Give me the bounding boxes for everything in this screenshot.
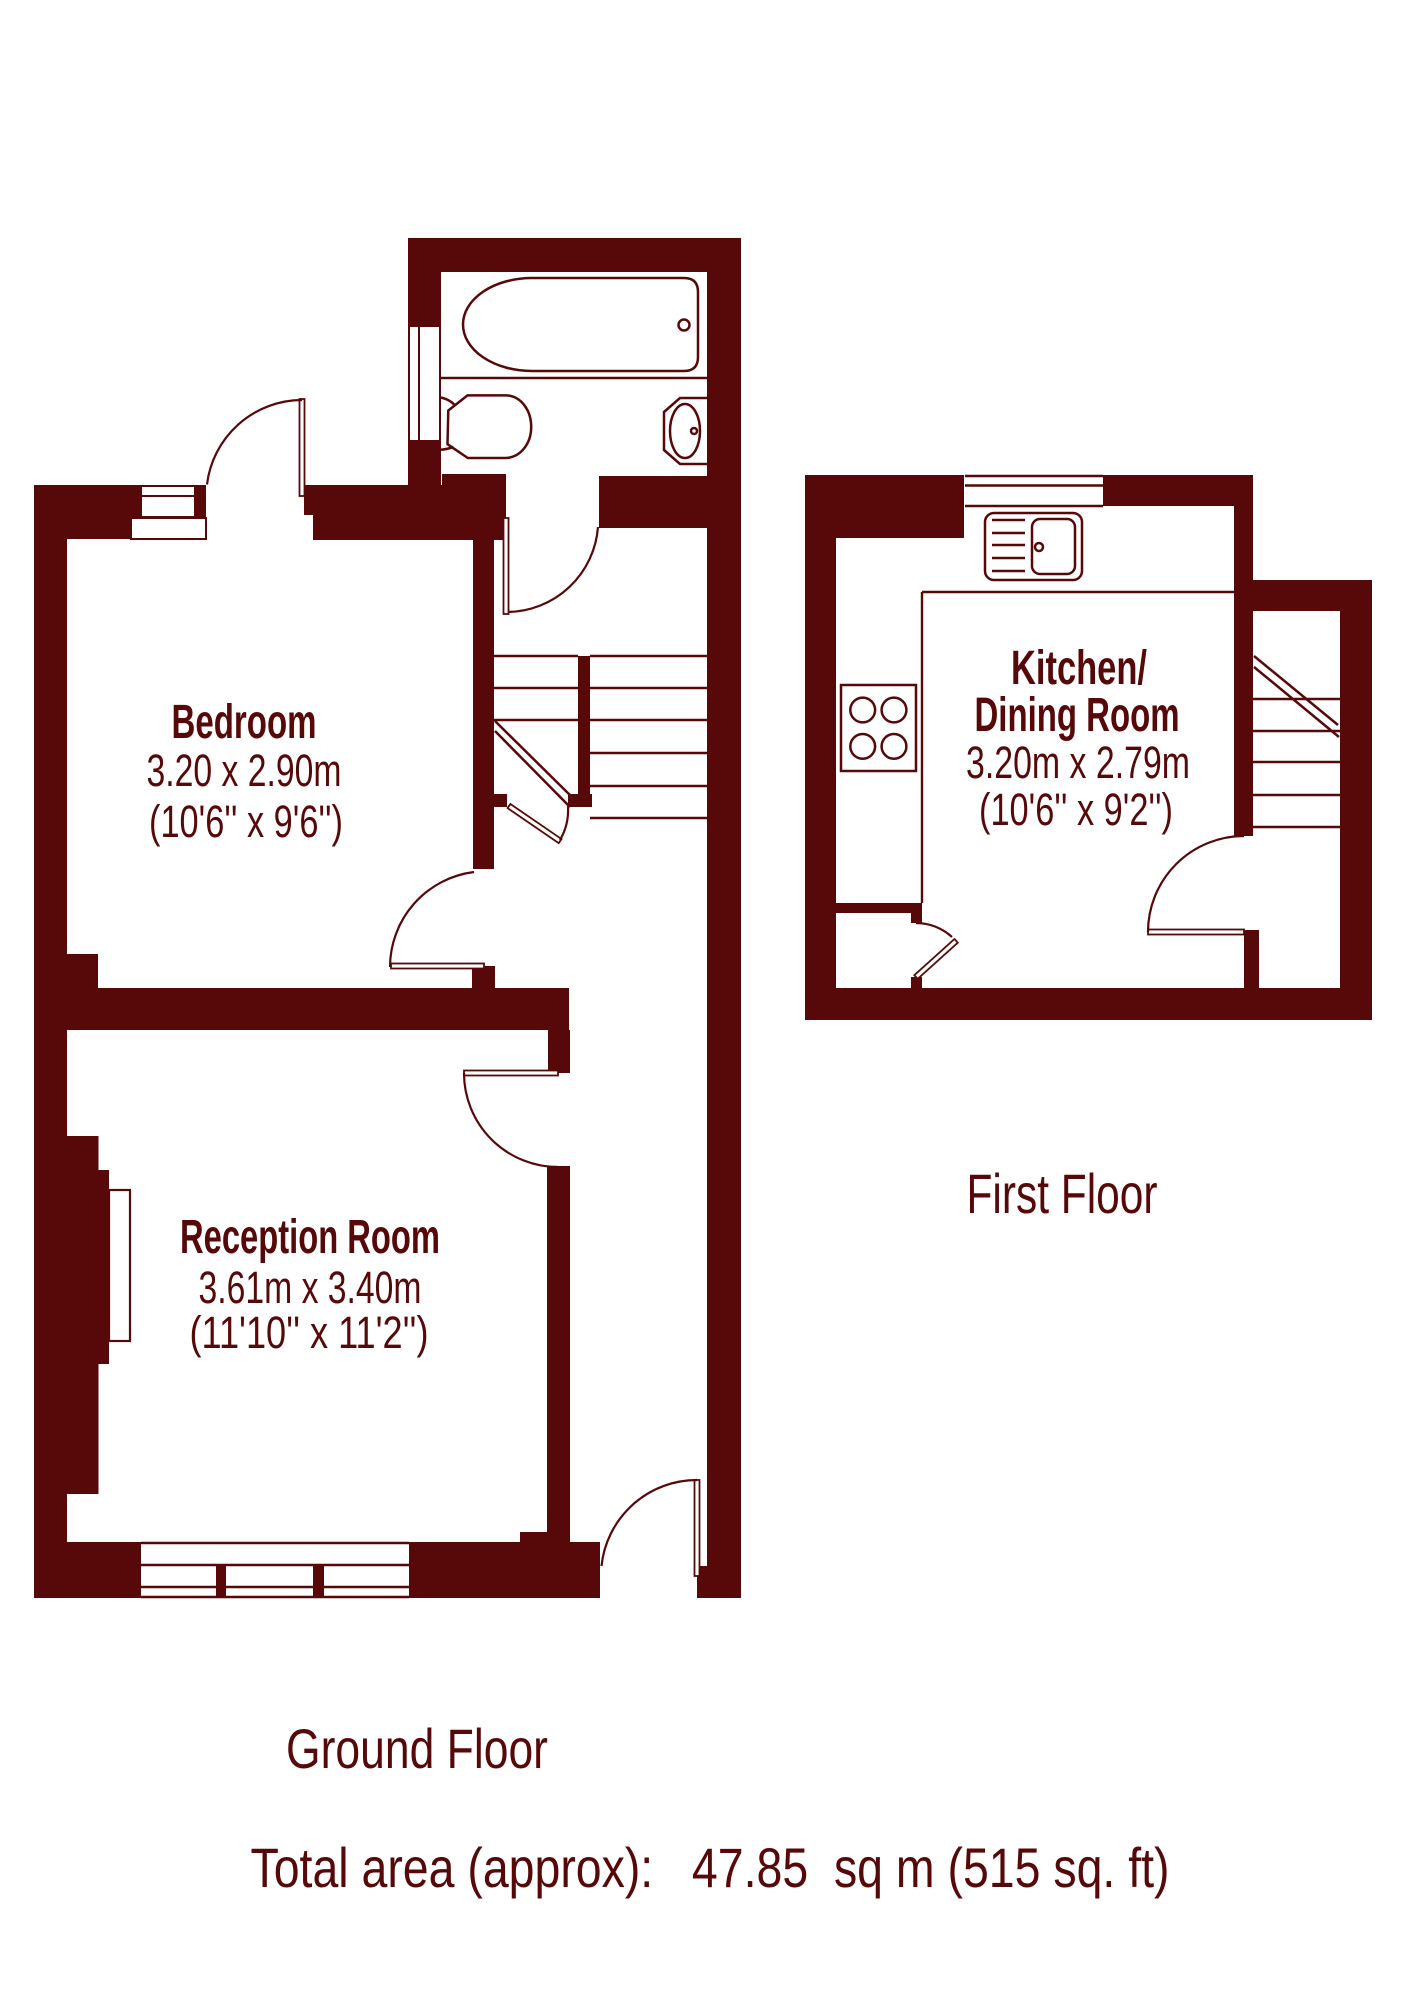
svg-text:(10'6'' x 9'6''): (10'6'' x 9'6'') — [149, 796, 343, 847]
svg-text:3.20m x 2.79m: 3.20m x 2.79m — [966, 737, 1190, 788]
svg-text:Ground Floor: Ground Floor — [286, 1717, 548, 1780]
svg-text:First Floor: First Floor — [967, 1162, 1158, 1225]
svg-text:Reception Room: Reception Room — [180, 1211, 440, 1264]
svg-text:Kitchen/: Kitchen/ — [1011, 642, 1147, 695]
svg-text:3.61m x 3.40m: 3.61m x 3.40m — [199, 1262, 422, 1313]
svg-text:(10'6'' x 9'2''): (10'6'' x 9'2'') — [979, 784, 1173, 835]
svg-text:3.20 x 2.90m: 3.20 x 2.90m — [147, 745, 342, 796]
svg-text:Dining Room: Dining Room — [975, 689, 1180, 742]
svg-text:(11'10'' x 11'2''): (11'10'' x 11'2'') — [190, 1307, 429, 1358]
svg-text:Bedroom: Bedroom — [172, 696, 317, 749]
svg-text:Total area (approx): 47.85: Total area (approx): 47.85 sq m (515 sq.… — [251, 1836, 1170, 1899]
